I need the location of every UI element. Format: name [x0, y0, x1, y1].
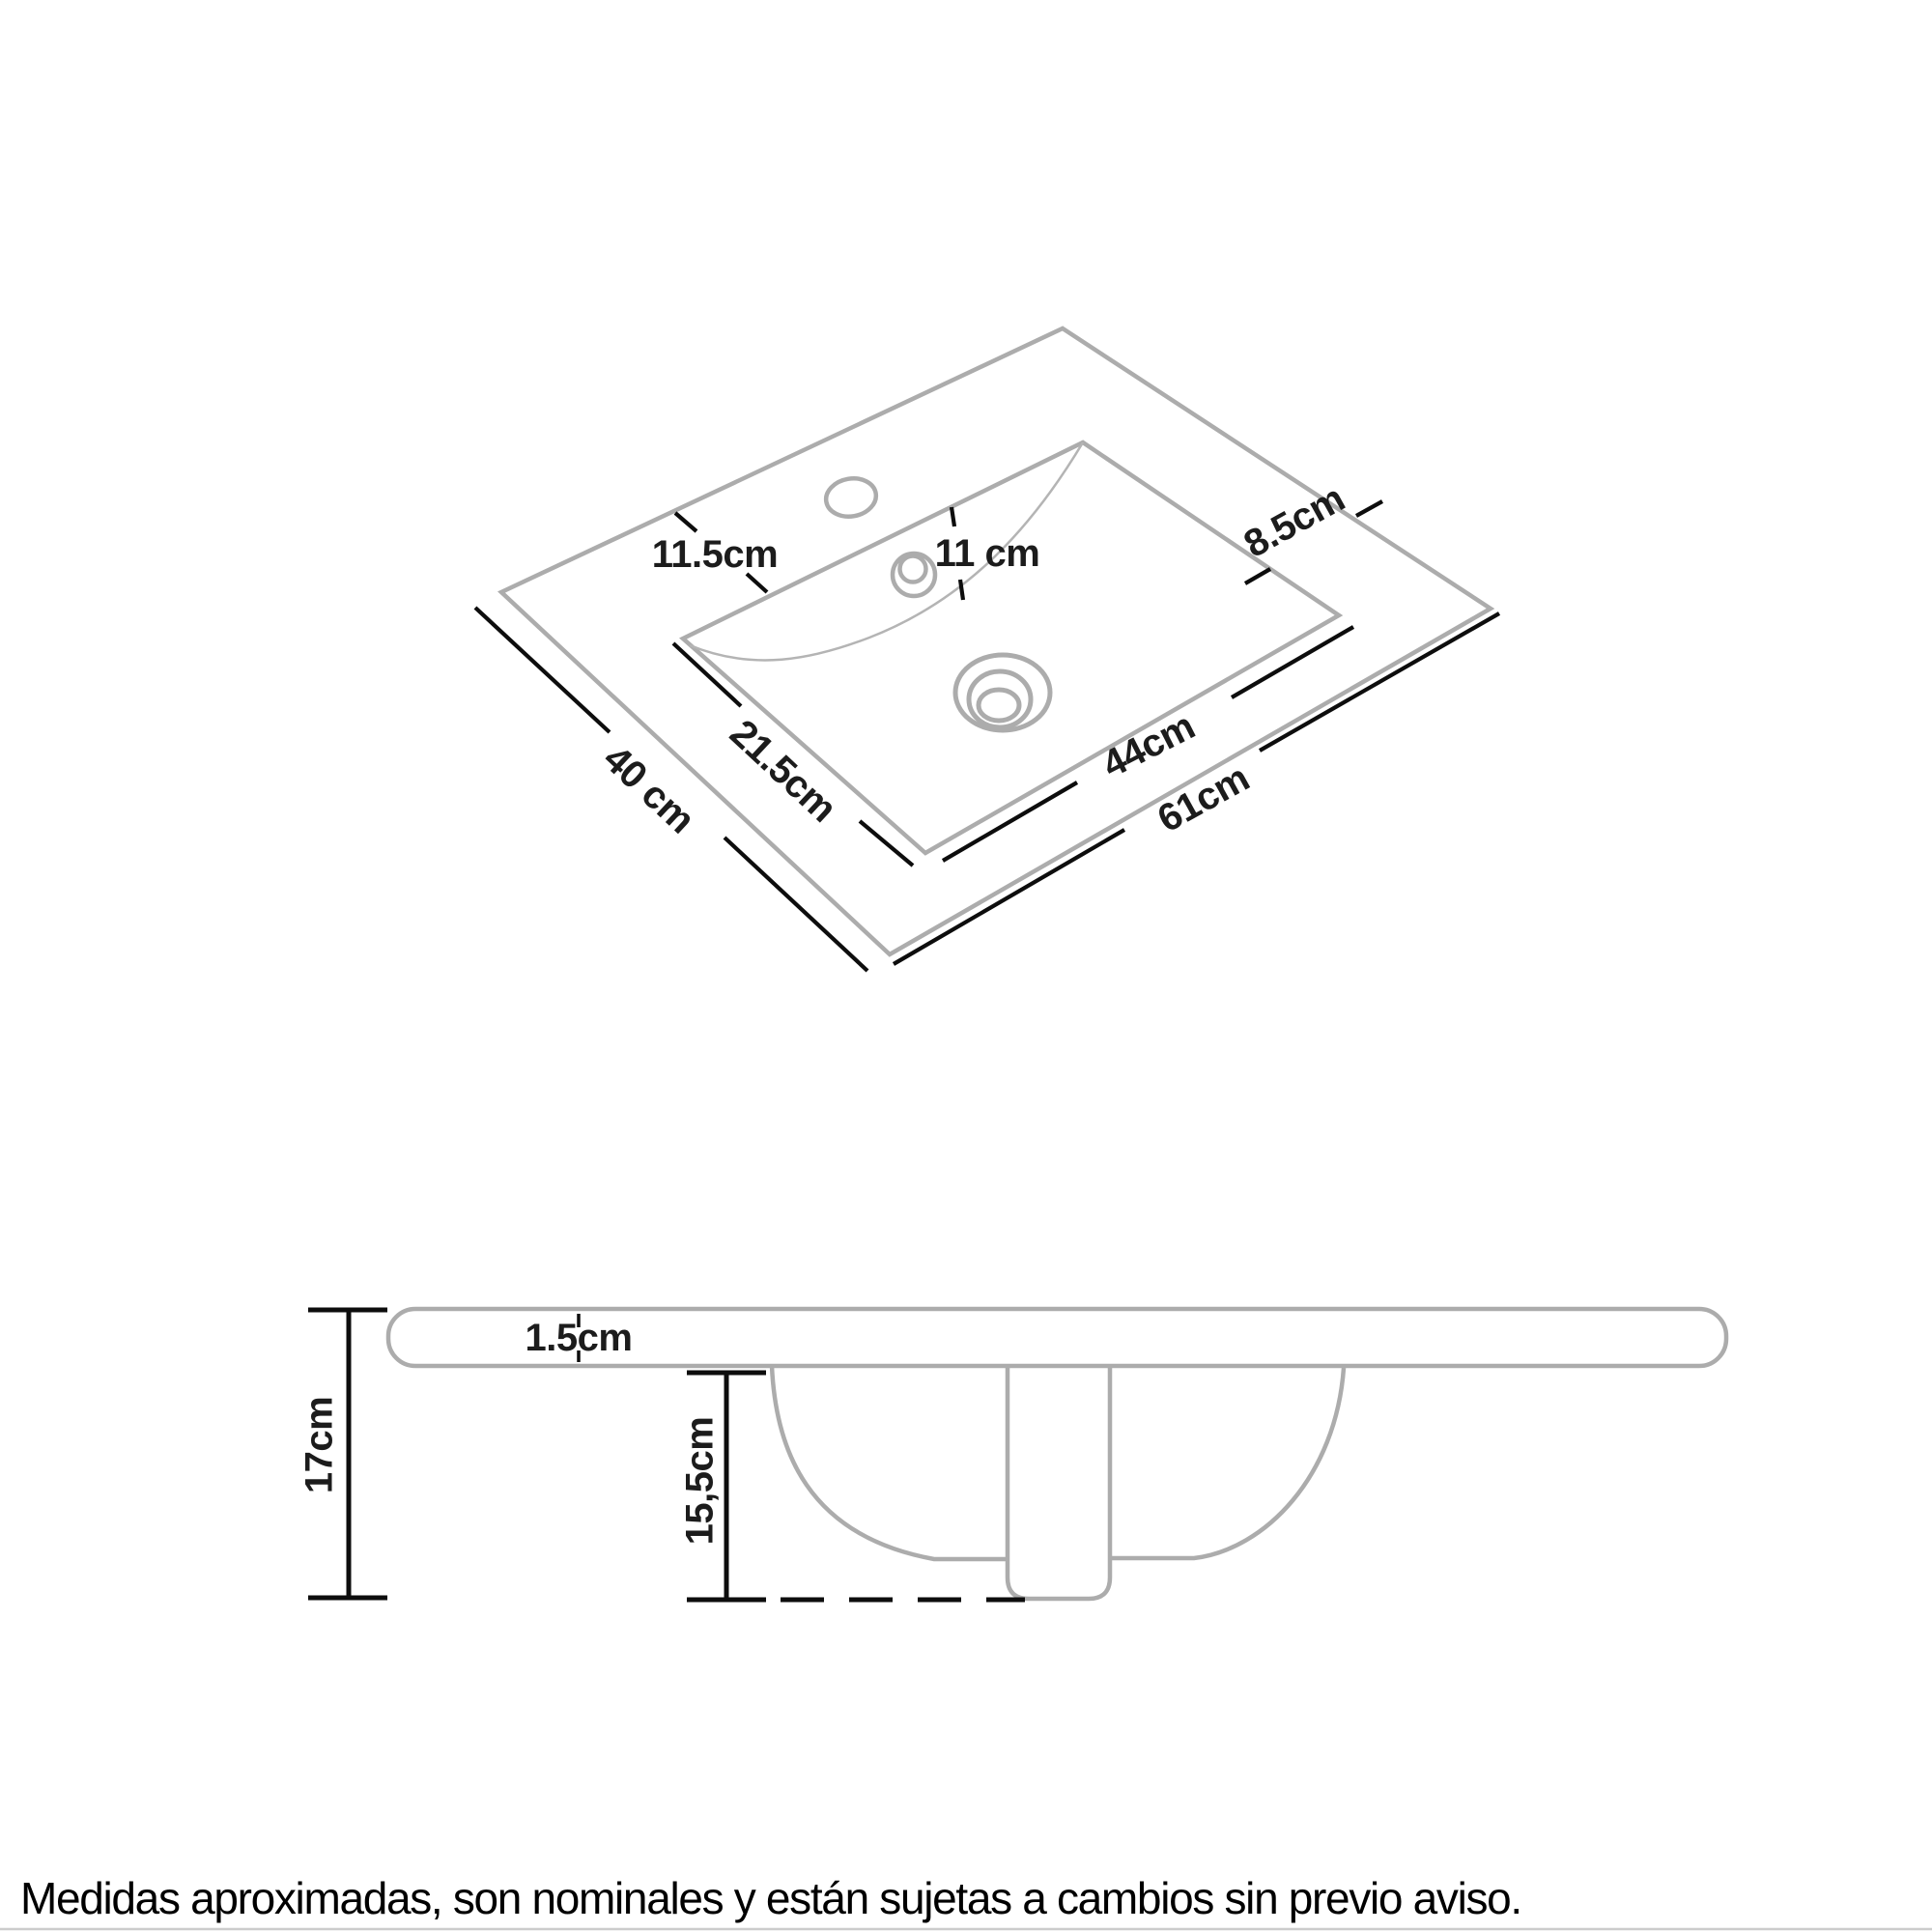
svg-text:1.5cm: 1.5cm	[526, 1317, 633, 1359]
svg-text:11.5cm: 11.5cm	[652, 533, 778, 576]
svg-text:11 cm: 11 cm	[935, 532, 1040, 575]
svg-text:Medidas aproximadas, son nomin: Medidas aproximadas, son nominales y est…	[20, 1873, 1521, 1923]
svg-text:15,5cm: 15,5cm	[679, 1417, 722, 1546]
svg-text:17cm: 17cm	[298, 1397, 341, 1493]
